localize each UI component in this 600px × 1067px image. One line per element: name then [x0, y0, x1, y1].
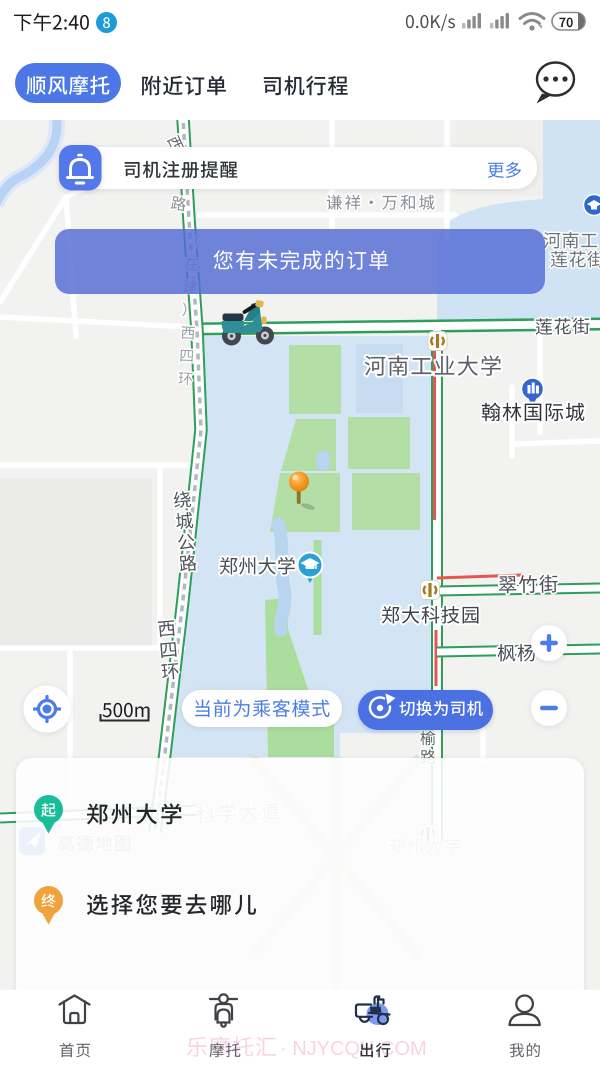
svg-text:· NJYCQH.COM: · NJYCQH.COM [280, 1038, 427, 1060]
